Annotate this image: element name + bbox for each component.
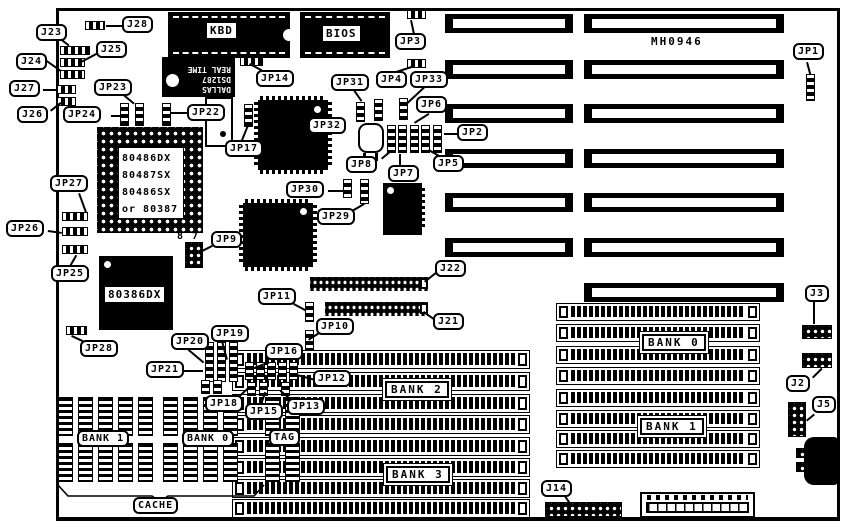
isa-slot-segment	[584, 193, 784, 212]
label-jp29: JP29	[317, 208, 355, 225]
cache-bank1-label: BANK 1	[77, 430, 129, 447]
label-jp2: JP2	[457, 124, 488, 141]
isa-slot-segment	[584, 104, 784, 123]
jumper-jp26	[62, 227, 88, 236]
simm-slot-bank2	[232, 372, 530, 391]
bank2-label: BANK 2	[385, 381, 449, 398]
bank3-label: BANK 3	[386, 466, 450, 483]
cache-bank0-label: BANK 0	[182, 430, 234, 447]
jp9-header	[185, 242, 203, 268]
leader-line	[813, 300, 815, 324]
label-j26: J26	[17, 106, 48, 123]
label-j3: J3	[805, 285, 829, 302]
label-jp10: JP10	[316, 318, 354, 335]
tag-chip	[285, 443, 300, 482]
label-j22: J22	[435, 260, 466, 277]
label-jp30: JP30	[286, 181, 324, 198]
label-j2: J2	[786, 375, 810, 392]
isa-slot-segment	[584, 60, 784, 79]
simm-slot-bank0	[556, 303, 760, 321]
jumper-jp29	[360, 179, 369, 204]
label-jp32: JP32	[308, 117, 346, 134]
jumper-jp31	[356, 102, 365, 122]
din-pin-block	[796, 448, 805, 458]
isa-slot-segment	[445, 60, 573, 79]
isa-slot-segment	[445, 238, 573, 257]
simm-slot-bank3	[232, 499, 530, 518]
label-jp21: JP21	[146, 361, 184, 378]
kbd-chip-label: KBD	[206, 22, 237, 39]
label-jp17: JP17	[225, 140, 263, 157]
j14-header	[545, 502, 622, 517]
jumper-jp11	[305, 302, 314, 322]
j3-header	[802, 325, 832, 339]
label-j25: J25	[96, 41, 127, 58]
simm-slot-bank1	[556, 389, 760, 407]
dallas-rtc-text: DALLAS DS1287 REAL TIME	[162, 57, 235, 97]
j5-header	[788, 402, 806, 437]
80386dx-label: 80386DX	[104, 286, 165, 303]
label-jp9: JP9	[211, 231, 242, 248]
cache-label: CACHE	[133, 497, 178, 514]
jumper-jp1	[806, 74, 815, 101]
label-jp16: JP16	[265, 343, 303, 360]
label-jp3: JP3	[395, 33, 426, 50]
din-pin-block	[796, 462, 805, 472]
jumper-j23	[60, 46, 90, 55]
jumper-jp23	[135, 103, 144, 126]
label-jp1: JP1	[793, 43, 824, 60]
leader-line	[184, 370, 203, 372]
label-jp28: JP28	[80, 340, 118, 357]
isa-slot-segment	[445, 14, 573, 33]
dallas-rtc-chip: DALLAS DS1287 REAL TIME	[162, 57, 235, 97]
label-jp18: JP18	[205, 395, 243, 412]
label-jp25: JP25	[51, 265, 89, 282]
label-j24: J24	[16, 53, 47, 70]
jumper-j27	[57, 85, 76, 94]
isa-slot-segment	[584, 149, 784, 168]
isa-slot-segment	[445, 104, 573, 123]
label-jp20: JP20	[171, 333, 209, 350]
j22-header	[310, 277, 428, 291]
label-jp14: JP14	[256, 70, 294, 87]
label-jp22: JP22	[187, 104, 225, 121]
label-jp15: JP15	[245, 403, 283, 420]
tag-label: TAG	[269, 429, 300, 446]
label-j5: J5	[812, 396, 836, 413]
jumper-jp3	[407, 10, 426, 19]
cache-chip	[138, 443, 153, 482]
jumper-jp17	[244, 104, 253, 127]
jumper-jp18	[201, 380, 210, 394]
bank1-label: BANK 1	[640, 418, 704, 435]
cache-chip	[78, 443, 93, 482]
jumper-strip	[267, 362, 276, 380]
jumper-jp2	[433, 125, 442, 153]
label-jp27: JP27	[50, 175, 88, 192]
label-jp11: JP11	[258, 288, 296, 305]
j2-header	[802, 353, 832, 368]
power-connector	[640, 492, 755, 518]
isa-slot-segment	[584, 14, 784, 33]
leader-line	[111, 115, 120, 117]
simm-slot-bank1	[556, 450, 760, 468]
jumper-jp16	[245, 362, 254, 380]
cache-chip	[98, 443, 113, 482]
jumper-jp8	[387, 125, 396, 153]
cache-chip	[118, 443, 133, 482]
cache-chip	[183, 443, 198, 482]
jp9-pin8-marker: 8	[177, 231, 183, 242]
label-jp33: JP33	[410, 71, 448, 88]
jumper-jp30	[343, 179, 352, 198]
label-jp24: JP24	[63, 106, 101, 123]
isa-slot-segment	[445, 193, 573, 212]
jp9-pin7-marker: 7	[192, 231, 198, 242]
label-jp5: JP5	[433, 155, 464, 172]
label-jp8: JP8	[346, 156, 377, 173]
jumper-jp12	[289, 362, 298, 380]
label-jp19: JP19	[211, 325, 249, 342]
cache-chip	[138, 397, 153, 436]
bios-chip-label: BIOS	[322, 25, 361, 42]
jumper-jp21	[229, 342, 238, 382]
motherboard-diagram: MH0946 KBD BIOS DALLAS DS1287 REAL TIME …	[0, 0, 842, 527]
label-j21: J21	[433, 313, 464, 330]
label-jp31: JP31	[331, 74, 369, 91]
jumper-jp25	[62, 245, 88, 254]
label-jp4: JP4	[376, 71, 407, 88]
label-jp6: JP6	[416, 96, 447, 113]
label-jp7: JP7	[388, 165, 419, 182]
cache-chip	[203, 443, 218, 482]
cache-chip	[58, 397, 73, 436]
dallas-logo-icon	[166, 74, 179, 87]
cache-chip	[163, 443, 178, 482]
label-jp26: JP26	[6, 220, 44, 237]
isa-slot-segment	[584, 238, 784, 257]
label-jp13: JP13	[287, 398, 325, 415]
cache-chip	[58, 443, 73, 482]
board-marking: MH0946	[651, 35, 703, 48]
jumper-jp10	[305, 330, 314, 351]
keyboard-din-connector	[804, 437, 838, 485]
j21-header	[325, 302, 428, 316]
jumper-jp27	[62, 212, 88, 221]
jumper-jp4-aux	[374, 99, 383, 121]
label-j27: J27	[9, 80, 40, 97]
label-jp12: JP12	[313, 370, 351, 387]
cache-chip	[163, 397, 178, 436]
bank0-label: BANK 0	[642, 334, 706, 351]
jumper-jp15	[247, 382, 256, 396]
label-j23: J23	[36, 24, 67, 41]
jumper-jp24	[120, 103, 129, 126]
leader-line	[43, 89, 57, 91]
leader-line	[444, 133, 458, 135]
jumper-jp7	[398, 125, 407, 153]
simm-slot-bank0	[556, 367, 760, 385]
isa-slot-segment	[584, 283, 784, 302]
jumper-jp6	[410, 125, 419, 153]
cache-chip	[223, 443, 238, 482]
label-j14: J14	[541, 480, 572, 497]
leader-line	[106, 25, 122, 27]
tag-chip	[265, 443, 280, 482]
jumper-strip	[213, 380, 222, 394]
label-j28: J28	[122, 16, 153, 33]
leader-line	[171, 112, 187, 114]
jumper-jp28	[66, 326, 87, 335]
crystal-oscillator	[358, 123, 384, 153]
label-jp23: JP23	[94, 79, 132, 96]
leader-line	[328, 190, 343, 192]
cpu-socket-label: 80486DX 80487SX 80486SX or 80387	[118, 147, 184, 219]
jumper-strip	[278, 362, 287, 380]
jumper-j28	[85, 21, 105, 30]
jumper-jp22	[162, 103, 171, 126]
isa-slot-segment	[445, 149, 573, 168]
jumper-j24	[60, 70, 85, 79]
